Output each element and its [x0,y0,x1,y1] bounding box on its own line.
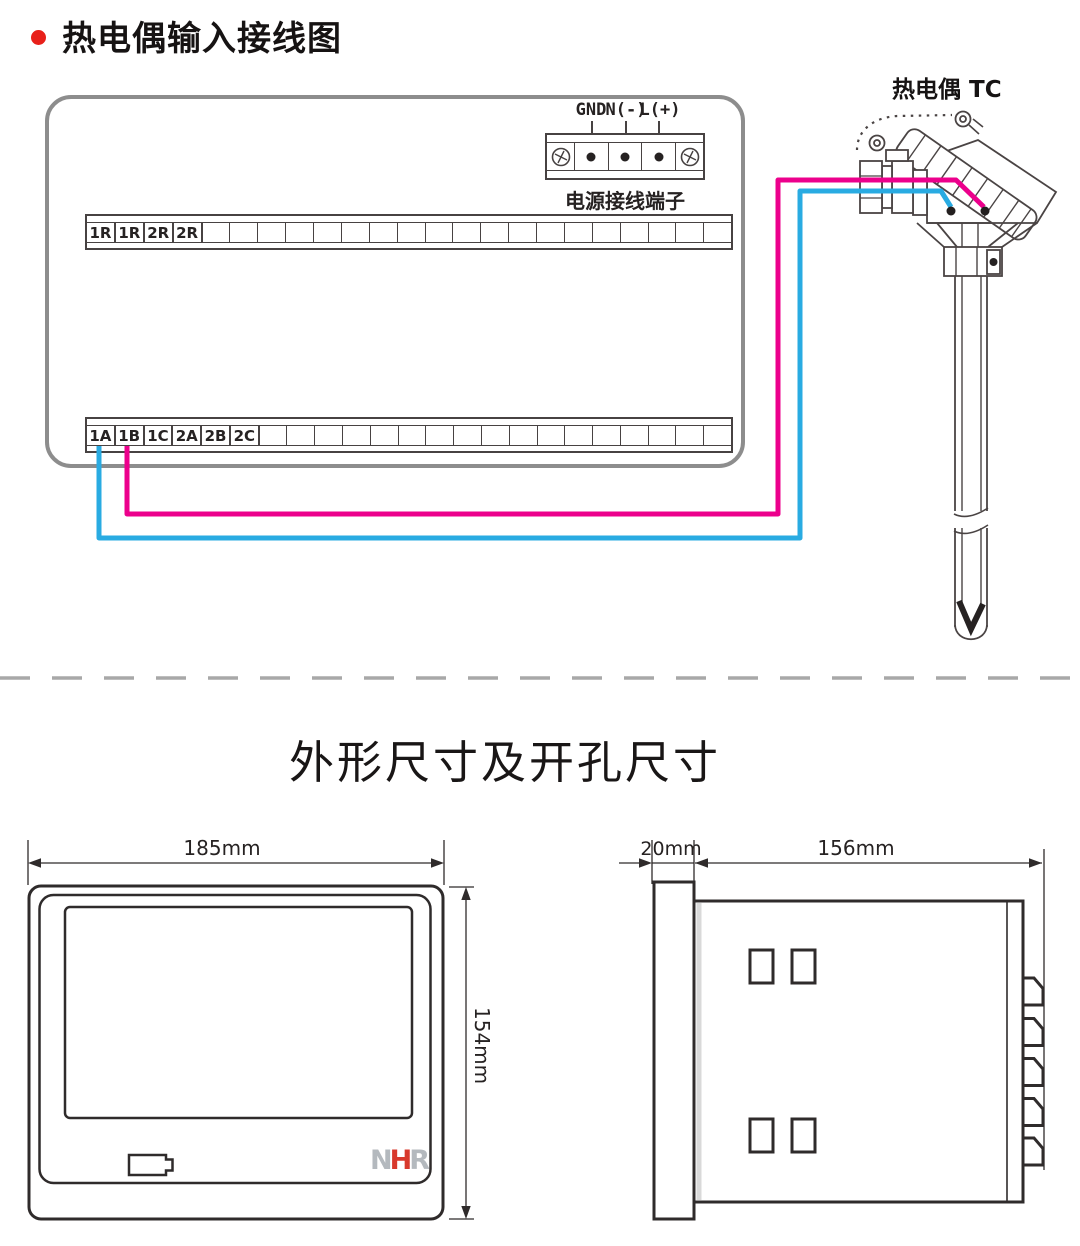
terminal-tooth [1023,978,1043,1005]
terminal-cell-empty [426,223,454,242]
screw-terminal-icon [675,143,703,170]
terminal-cell-empty [704,223,731,242]
terminal-cell-empty [230,223,258,242]
vent-hole [750,950,773,983]
terminal-cell-empty [426,426,454,445]
terminal-cell-empty [203,223,231,242]
thermocouple-junction-icon [959,601,983,629]
terminal-tooth [1023,1019,1043,1046]
side-body [694,901,1023,1202]
head-terminal-dot [981,207,990,216]
logo-letter-h: H [390,1145,410,1176]
terminal-dot [587,152,596,161]
terminal-cell-empty [593,426,621,445]
terminal-cell-empty [509,223,537,242]
terminal-cell-1B: 1B [116,426,145,445]
terminal-cell-empty [399,426,427,445]
front-height-dim: 154mm [470,1007,494,1084]
terminal-strip-lower: 1A 1B 1C 2A 2B 2C [85,417,733,453]
side-depth-dim: 20mm [640,838,701,860]
terminal-cell-2C: 2C [231,426,260,445]
terminal-cell-empty [453,223,481,242]
terminal-cell-1R: 1R [116,223,145,242]
terminal-cell-empty [621,223,649,242]
terminal-cell-1A: 1A [87,426,116,445]
terminal-tooth [1023,1059,1043,1086]
terminal-cell-empty [343,426,371,445]
side-body-dim: 156mm [817,836,894,860]
terminal-tooth [1023,1138,1043,1165]
thermocouple-label: 热电偶 TC [892,70,1002,104]
vent-hole [792,950,815,983]
usb-port [129,1155,173,1175]
power-block-top-band [547,135,703,143]
terminal-cell-empty [260,426,288,445]
terminal-cell-empty [482,426,510,445]
terminal-cell-empty [676,223,704,242]
terminal-cell-empty [315,426,343,445]
terminal-cell-empty [370,223,398,242]
terminal-cell-empty [454,426,482,445]
vent-hole [792,1119,815,1152]
power-terminal-gnd [575,143,609,170]
power-caption: 电源接线端子 [565,185,685,214]
terminal-cell-empty [371,426,399,445]
side-bezel [654,882,694,1219]
terminal-cell-empty [286,223,314,242]
power-label-gnd: GND [576,100,607,120]
front-width-dim: 185mm [183,836,260,860]
gland-screw-icon [870,136,885,151]
terminal-cell-empty [649,223,677,242]
collar-screw-icon [990,258,998,266]
terminal-cell-2A: 2A [173,426,202,445]
terminal-cell-2B: 2B [202,426,231,445]
thermocouple-head [927,140,1056,223]
head-terminal-dot [947,207,956,216]
terminal-cell-empty [704,426,731,445]
power-block-bottom-band [547,170,703,178]
terminal-cell-empty [398,223,426,242]
terminal-cell-empty [593,223,621,242]
terminal-cell-empty [565,223,593,242]
screw-terminal-icon [547,143,575,170]
terminal-cell-empty [676,426,704,445]
terminal-cell-empty [510,426,538,445]
terminal-cell-1C: 1C [145,426,174,445]
power-terminal-n [609,143,643,170]
terminal-cell-empty [258,223,286,242]
logo-letter-r: R [409,1145,427,1176]
terminal-cell-empty [565,426,593,445]
terminal-cell-2R: 2R [145,223,174,242]
terminal-cell-empty [621,426,649,445]
dimensions-title: 外形尺寸及开孔尺寸 [0,726,1010,791]
terminal-cell-empty [481,223,509,242]
thermocouple-cap [893,126,1040,243]
front-screen [65,907,412,1118]
wiring-title: 热电偶输入接线图 [62,11,342,60]
terminal-strip-upper: 1R 1R 2R 2R [85,214,733,250]
terminal-dot [654,152,663,161]
strip-band [87,419,731,426]
vent-hole [750,1119,773,1152]
terminal-cell-empty [314,223,342,242]
power-terminal-block [545,133,705,180]
power-label-l: L(+) [640,100,681,120]
logo-letter-n: N [370,1145,390,1176]
strip-band [87,216,731,223]
strip-band [87,445,731,451]
terminal-cell-empty [537,223,565,242]
terminal-dot [621,152,630,161]
title-bullet-icon [31,30,46,45]
cable-gland [913,170,927,215]
power-terminal-l [642,143,675,170]
terminal-cell-empty [649,426,677,445]
terminal-cell-empty [538,426,566,445]
terminal-cell-empty [342,223,370,242]
terminal-cell-empty [287,426,315,445]
terminal-tooth [1023,1099,1043,1126]
cap-screw-icon [956,112,971,127]
chain-dotted-line [857,115,952,150]
nhr-logo: NHR [370,1145,427,1176]
terminal-cell-2R: 2R [174,223,203,242]
terminal-cell-1R: 1R [87,223,116,242]
strip-band [87,242,731,248]
